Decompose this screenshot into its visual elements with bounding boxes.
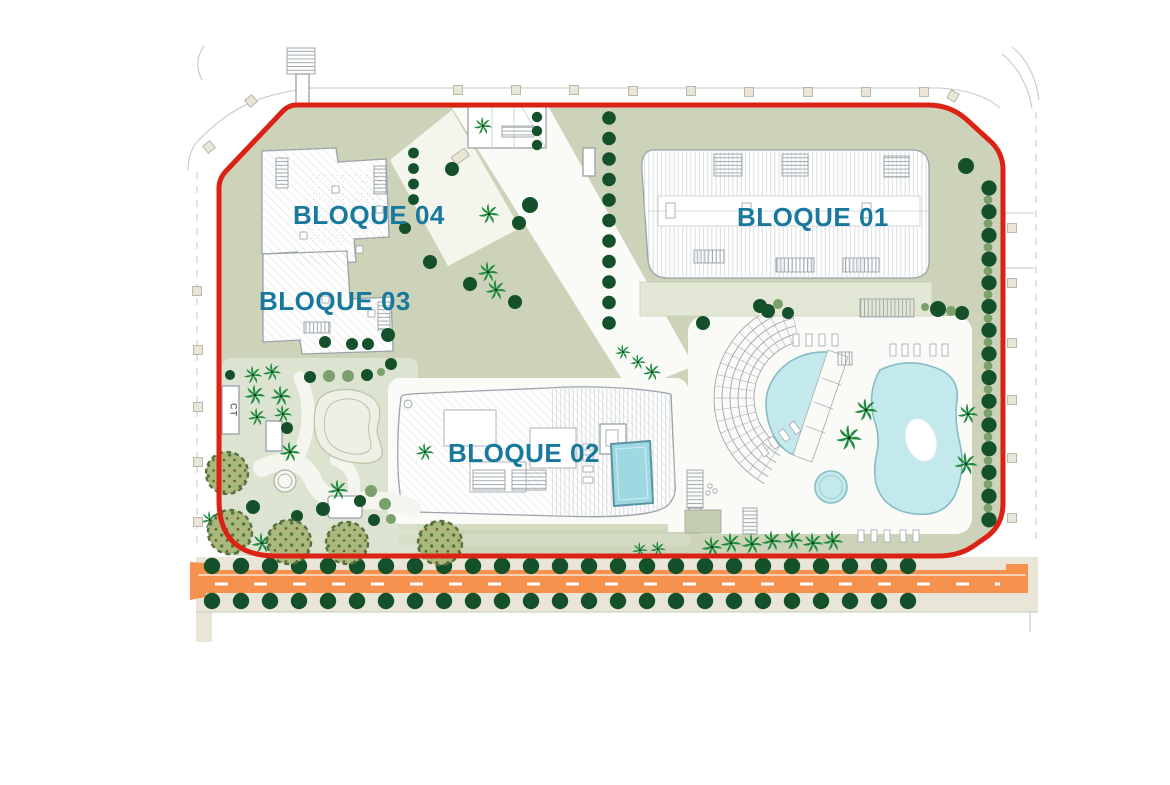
street-tree [494, 558, 510, 574]
olive-tree [773, 299, 783, 309]
street-light-square [862, 88, 871, 97]
street-light-square [804, 88, 813, 97]
site-plan-page: CT BLOQUE 04 BLOQUE 03 BLOQUE 01 BLOQUE … [0, 0, 1170, 785]
column-tree [981, 370, 996, 385]
street-tree [204, 593, 220, 609]
column-tree [532, 112, 542, 122]
round-tree [361, 369, 373, 381]
street-light-square [194, 346, 203, 355]
column-tree [981, 346, 996, 361]
column-tree [981, 228, 996, 243]
column-tree [981, 275, 996, 290]
round-tree [512, 216, 526, 230]
bloque-01-building [640, 150, 932, 316]
street-tree [378, 558, 394, 574]
label-bloque-04: BLOQUE 04 [293, 200, 445, 230]
street-light-square [570, 86, 579, 95]
stair-top-2 [782, 154, 808, 176]
street-tree [871, 558, 887, 574]
column-tree [981, 299, 996, 314]
column-tree [602, 132, 616, 146]
column-tree [981, 441, 996, 456]
street-tree [552, 558, 568, 574]
street-tree [813, 593, 829, 609]
street-tree [610, 593, 626, 609]
round-tree [304, 371, 316, 383]
olive-tree [379, 498, 391, 510]
street-tree [842, 593, 858, 609]
round-tree [362, 338, 374, 350]
street-tree [668, 558, 684, 574]
round-tree [319, 336, 331, 348]
street-tree [581, 593, 597, 609]
column-tree [602, 275, 616, 289]
column-tree-small [984, 504, 993, 513]
street-tree [900, 593, 916, 609]
column-tree [602, 214, 616, 228]
fountain-outer [274, 470, 296, 492]
stair-bottom-3 [843, 258, 879, 272]
column-tree-small [984, 219, 993, 228]
street-tree [784, 558, 800, 574]
olive-tree [921, 303, 929, 311]
street-tree [320, 593, 336, 609]
street-tree [233, 593, 249, 609]
street-tree [378, 593, 394, 609]
round-tree [955, 306, 969, 320]
street-tree [262, 593, 278, 609]
garden-kiosk [266, 421, 282, 451]
road-west-end [190, 562, 206, 600]
round-tree [368, 514, 380, 526]
street-light-square [745, 88, 754, 97]
ct-transformer: CT [222, 386, 239, 434]
column-tree [602, 152, 616, 166]
round-tree [346, 338, 358, 350]
crosswalk-stem [296, 74, 309, 106]
column-tree-small [984, 409, 993, 418]
street-tree [407, 558, 423, 574]
round-tree [782, 307, 794, 319]
round-tree [381, 328, 395, 342]
street-tree [407, 593, 423, 609]
column-tree [602, 173, 616, 187]
street-tree [233, 558, 249, 574]
column-tree [602, 255, 616, 269]
road-east-end [1006, 564, 1028, 593]
pergola [860, 299, 914, 317]
street-tree [697, 593, 713, 609]
round-tree [930, 301, 946, 317]
street-light-square [1008, 454, 1017, 463]
column-tree-small [984, 385, 993, 394]
street-light-square [629, 87, 638, 96]
column-tree-small [984, 432, 993, 441]
stair-1 [276, 158, 288, 188]
round-tree [316, 502, 330, 516]
street-tree [204, 558, 220, 574]
south-sidewalk-spur [196, 612, 212, 642]
street-light-square [454, 86, 463, 95]
column-tree-small [984, 243, 993, 252]
column-tree [981, 512, 996, 527]
olive-tree [377, 368, 385, 376]
street-tree [871, 593, 887, 609]
street-tree [320, 558, 336, 574]
street-tree [436, 593, 452, 609]
round-tree [522, 197, 538, 213]
column-tree [532, 140, 542, 150]
street-light-square [1008, 514, 1017, 523]
column-tree [602, 193, 616, 207]
street-light-square [194, 518, 203, 527]
road-asphalt [204, 570, 1006, 593]
street-tree [552, 593, 568, 609]
column-tree-small [984, 314, 993, 323]
stair-top-3 [884, 156, 909, 177]
street-light-square [194, 403, 203, 412]
olive-tree [365, 485, 377, 497]
column-tree [981, 252, 996, 267]
column-tree [981, 465, 996, 480]
column-tree [532, 126, 542, 136]
column-tree [602, 296, 616, 310]
street-tree [523, 558, 539, 574]
stair-3 [304, 322, 330, 333]
street-light-square [194, 458, 203, 467]
small-kiosk [583, 148, 595, 176]
column-tree [408, 148, 419, 159]
olive-tree [342, 370, 354, 382]
street-tree [726, 558, 742, 574]
round-tree [958, 158, 974, 174]
olive-tree [386, 514, 396, 524]
street-tree [784, 593, 800, 609]
label-bloque-03: BLOQUE 03 [259, 286, 411, 316]
street-tree [639, 558, 655, 574]
olive-tree [946, 306, 956, 316]
round-tree [463, 277, 477, 291]
round-tree [281, 422, 293, 434]
round-tree [246, 500, 260, 514]
street-tree [349, 593, 365, 609]
street-tree [581, 558, 597, 574]
street-light-square [920, 88, 929, 97]
column-tree-small [984, 195, 993, 204]
street-light-square [193, 287, 202, 296]
round-tree [445, 162, 459, 176]
street-tree [668, 593, 684, 609]
street-light-square [1008, 396, 1017, 405]
street-tree [262, 558, 278, 574]
round-tree [225, 370, 235, 380]
column-tree [981, 323, 996, 338]
label-bloque-02: BLOQUE 02 [448, 438, 600, 468]
column-tree [981, 180, 996, 195]
column-tree-small [984, 361, 993, 370]
column-tree-small [984, 480, 993, 489]
entrance-ramp [502, 126, 534, 137]
column-tree [602, 234, 616, 248]
olive-tree [323, 370, 335, 382]
column-tree-small [984, 456, 993, 465]
column-tree [408, 179, 419, 190]
ramp-south-2 [743, 508, 757, 534]
column-tree [981, 204, 996, 219]
street-tree [465, 558, 481, 574]
round-tree [354, 495, 366, 507]
street-tree [523, 593, 539, 609]
column-tree [981, 417, 996, 432]
column-tree [981, 394, 996, 409]
round-tree [385, 358, 397, 370]
street-tree [842, 558, 858, 574]
street-tree [494, 593, 510, 609]
ct-label: CT [229, 403, 239, 417]
round-tree [423, 255, 437, 269]
column-tree-small [984, 290, 993, 299]
label-bloque-01: BLOQUE 01 [737, 202, 889, 232]
street-light-square [1008, 279, 1017, 288]
street-tree [813, 558, 829, 574]
street-tree [755, 558, 771, 574]
street-tree [726, 593, 742, 609]
stair-bottom-2 [776, 258, 814, 272]
street-light-square [1008, 224, 1017, 233]
stair-bottom-1 [694, 250, 724, 263]
planter-box [685, 510, 721, 533]
round-tree [696, 316, 710, 330]
street-tree [639, 593, 655, 609]
crosswalk-stripes [287, 48, 315, 74]
round-tree [761, 304, 775, 318]
column-tree [981, 489, 996, 504]
round-tree [508, 295, 522, 309]
street-tree [755, 593, 771, 609]
ramp-south-1 [687, 470, 703, 508]
street-tree [610, 558, 626, 574]
bush-tree [206, 452, 248, 494]
street-light-square [687, 87, 696, 96]
street-tree [697, 558, 713, 574]
column-tree [602, 111, 616, 125]
street-light-square [1008, 339, 1017, 348]
column-tree [408, 163, 419, 174]
street-tree [900, 558, 916, 574]
street-tree [465, 593, 481, 609]
column-tree-small [984, 267, 993, 276]
street-tree [291, 593, 307, 609]
stair-top-1 [714, 154, 742, 176]
column-tree [602, 316, 616, 330]
stair-2 [374, 166, 386, 194]
column-tree-small [984, 338, 993, 347]
lane-steps [838, 352, 852, 365]
street-light-square [512, 86, 521, 95]
site-plan-canvas: CT BLOQUE 04 BLOQUE 03 BLOQUE 01 BLOQUE … [0, 0, 1170, 785]
